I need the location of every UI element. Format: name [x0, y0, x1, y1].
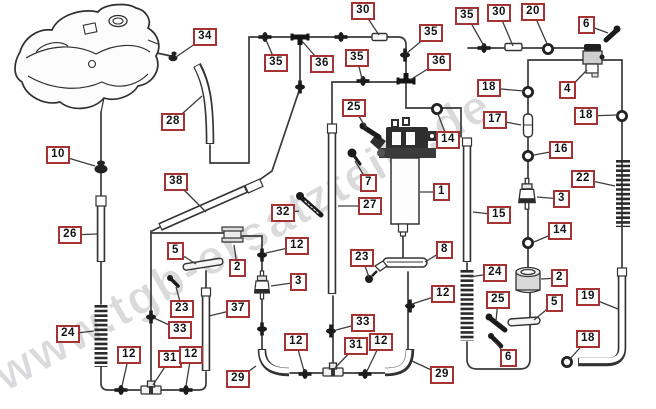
- callout-33: 33: [351, 314, 375, 332]
- callout-31: 31: [344, 337, 368, 355]
- callout-14: 14: [436, 131, 460, 149]
- callout-33: 33: [168, 321, 192, 339]
- callout-36: 36: [310, 55, 334, 73]
- callout-5: 5: [167, 242, 184, 260]
- callout-35: 35: [264, 54, 288, 72]
- callout-22: 22: [571, 170, 595, 188]
- callout-12: 12: [369, 333, 393, 351]
- callout-30: 30: [487, 4, 511, 22]
- callout-7: 7: [360, 174, 377, 192]
- callout-1: 1: [433, 183, 450, 201]
- callout-24: 24: [483, 264, 507, 282]
- callout-28: 28: [161, 113, 185, 131]
- callout-32: 32: [271, 204, 295, 222]
- callout-23: 23: [170, 300, 194, 318]
- callout-18: 18: [574, 107, 598, 125]
- callout-17: 17: [483, 111, 507, 129]
- callout-37: 37: [226, 300, 250, 318]
- callout-38: 38: [164, 173, 188, 191]
- callout-15: 15: [487, 206, 511, 224]
- callout-3: 3: [290, 273, 307, 291]
- callout-14: 14: [548, 222, 572, 240]
- callout-30: 30: [351, 2, 375, 20]
- callout-25: 25: [342, 99, 366, 117]
- callout-6: 6: [578, 16, 595, 34]
- callout-4: 4: [559, 81, 576, 99]
- callout-27: 27: [358, 197, 382, 215]
- callout-20: 20: [521, 3, 545, 21]
- callout-34: 34: [193, 28, 217, 46]
- callout-12: 12: [179, 346, 203, 364]
- callout-25: 25: [486, 291, 510, 309]
- callout-12: 12: [117, 346, 141, 364]
- callout-23: 23: [350, 249, 374, 267]
- callout-24: 24: [56, 325, 80, 343]
- parts-diagram: www.tgb-ersatzteile.de: [0, 0, 656, 409]
- callout-29: 29: [430, 366, 454, 384]
- callout-2: 2: [229, 259, 246, 277]
- callout-35: 35: [345, 49, 369, 67]
- callout-35: 35: [419, 24, 443, 42]
- callout-18: 18: [477, 79, 501, 97]
- callout-3: 3: [553, 190, 570, 208]
- callout-8: 8: [436, 241, 453, 259]
- callout-19: 19: [576, 288, 600, 306]
- callout-5: 5: [546, 294, 563, 312]
- callout-36: 36: [427, 53, 451, 71]
- callout-12: 12: [431, 285, 455, 303]
- callout-12: 12: [284, 333, 308, 351]
- callout-18: 18: [576, 330, 600, 348]
- callout-12: 12: [285, 237, 309, 255]
- callout-29: 29: [226, 370, 250, 388]
- callout-10: 10: [46, 146, 70, 164]
- callout-2: 2: [551, 269, 568, 287]
- callout-16: 16: [549, 141, 573, 159]
- callout-6: 6: [500, 349, 517, 367]
- callout-35: 35: [455, 7, 479, 25]
- callout-26: 26: [58, 226, 82, 244]
